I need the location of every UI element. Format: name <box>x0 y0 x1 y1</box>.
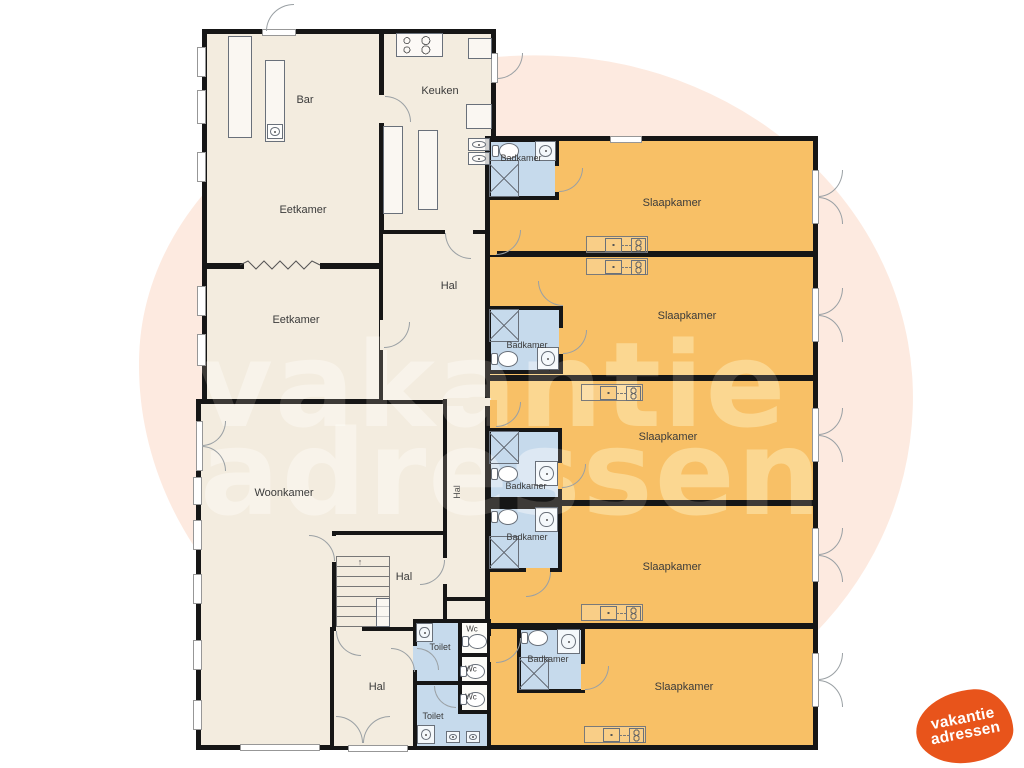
label-eetkamer-boven: Eetkamer <box>279 204 326 216</box>
label-hal-gang: Hal <box>452 485 462 499</box>
window <box>193 477 202 505</box>
label-keuken: Keuken <box>421 85 458 97</box>
window <box>197 152 206 182</box>
window <box>197 47 206 77</box>
stairs-landing <box>376 598 390 627</box>
label-hal-trap: Hal <box>396 571 413 583</box>
label-badkamer-1: Badkamer <box>500 153 541 163</box>
shower-icon <box>489 309 519 342</box>
kitchen-counter <box>418 130 438 210</box>
vakantieadressen-logo: vakantie adressen <box>914 687 1016 767</box>
window <box>193 574 202 604</box>
shower-icon <box>489 431 519 464</box>
sink-icon <box>537 347 559 370</box>
toilet-icon <box>491 351 517 365</box>
sink-icon <box>466 731 480 743</box>
shower-icon <box>489 160 519 197</box>
window <box>197 334 206 366</box>
sink-icon <box>416 623 433 642</box>
window <box>240 744 320 751</box>
label-woonkamer: Woonkamer <box>254 487 313 499</box>
stove-icon <box>396 33 443 57</box>
bar-counter <box>228 36 252 138</box>
door-arc <box>266 4 294 31</box>
label-badkamer-4: Badkamer <box>506 532 547 542</box>
kitchenette-icon <box>586 236 648 253</box>
bar-sink-icon <box>267 124 283 139</box>
label-wc-3: Wc <box>465 693 477 702</box>
toilet-icon <box>491 509 517 523</box>
window <box>348 745 408 752</box>
label-hal-centraal: Hal <box>441 280 458 292</box>
window <box>197 286 206 316</box>
window <box>193 520 202 550</box>
window <box>197 90 206 124</box>
window <box>193 700 202 730</box>
label-badkamer-5: Badkamer <box>527 654 568 664</box>
door-arc <box>818 680 843 707</box>
zigzag-divider <box>240 259 326 271</box>
label-wc-1: Wc <box>466 625 478 634</box>
window <box>610 136 642 143</box>
kitchenette-icon <box>584 726 646 743</box>
door-gap <box>447 398 491 406</box>
label-slaapkamer-3: Slaapkamer <box>639 431 698 443</box>
toilet-icon <box>521 630 547 644</box>
label-hal-onder: Hal <box>369 681 386 693</box>
label-toilet-boven: Toilet <box>429 642 450 652</box>
label-slaapkamer-1: Slaapkamer <box>643 197 702 209</box>
sink-icon <box>557 629 580 654</box>
label-toilet-onder: Toilet <box>422 711 443 721</box>
label-badkamer-3: Badkamer <box>505 481 546 491</box>
sink-icon <box>417 725 435 744</box>
label-wc-2: Wc <box>465 665 477 674</box>
label-badkamer-2: Badkamer <box>506 340 547 350</box>
window <box>193 640 202 670</box>
sink-icon <box>446 731 460 743</box>
kitchen-sink-icon <box>468 138 490 151</box>
kitchenette-icon <box>581 604 643 621</box>
floor-plan: vakantie adressen <box>0 0 1024 768</box>
kitchen-counter <box>468 38 492 59</box>
kitchen-sink-icon <box>468 152 490 165</box>
label-slaapkamer-4: Slaapkamer <box>643 561 702 573</box>
label-slaapkamer-5: Slaapkamer <box>655 681 714 693</box>
label-slaapkamer-2: Slaapkamer <box>658 310 717 322</box>
door-arc <box>818 170 843 197</box>
sink-icon <box>535 507 558 532</box>
kitchenette-icon <box>581 384 643 401</box>
kitchen-counter <box>466 104 492 129</box>
door-arc <box>818 653 843 680</box>
toilet-icon <box>462 634 485 647</box>
kitchen-counter <box>383 126 403 214</box>
kitchenette-icon <box>586 258 648 275</box>
label-eetkamer-onder: Eetkamer <box>272 314 319 326</box>
toilet-icon <box>491 466 517 480</box>
logo-text: vakantie adressen <box>927 706 1002 748</box>
label-bar: Bar <box>296 94 313 106</box>
